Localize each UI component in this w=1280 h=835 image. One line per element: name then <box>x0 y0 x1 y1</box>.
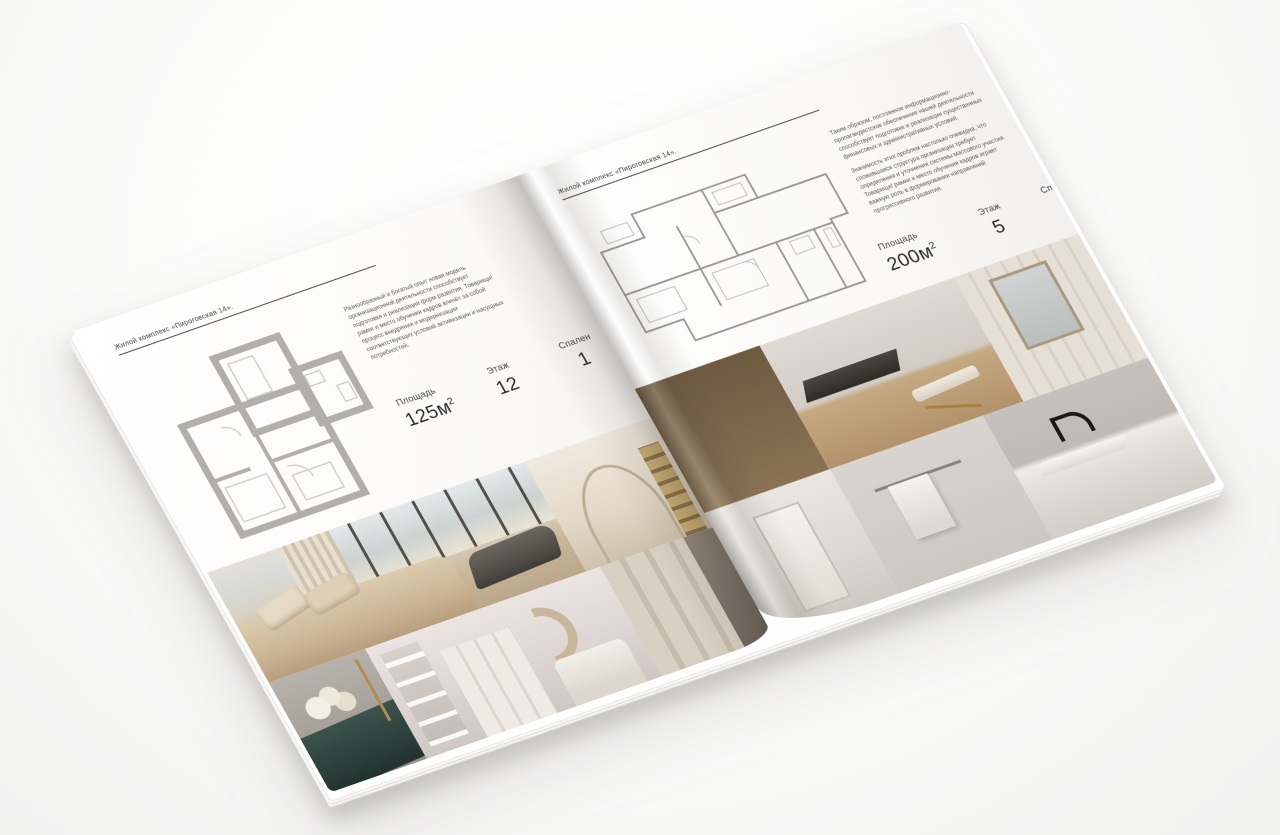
door <box>752 501 852 613</box>
left-stat-bedrooms: Спален 1 <box>557 332 606 376</box>
left-intro-paragraph: Разнообразный и богатый опыт новая модел… <box>343 258 516 363</box>
bench-cushion <box>911 364 981 402</box>
right-stat-bedrooms: Спален 2 <box>1038 176 1087 220</box>
floor-label: Этаж <box>976 201 1002 217</box>
floor-value: 12 <box>492 373 524 400</box>
bedrooms-value: 2 <box>1046 189 1088 219</box>
right-stat-floor: Этаж 5 <box>976 201 1015 241</box>
towel <box>888 474 957 540</box>
gold-bench-leg <box>926 404 983 409</box>
left-stat-area: Площадь 125м2 <box>394 382 461 432</box>
floor-value: 5 <box>983 214 1015 241</box>
left-stat-floor: Этаж 12 <box>485 360 524 400</box>
mockup-scene: Жилой комплекс «Пироговская 14». <box>0 0 1280 835</box>
dark-console-table <box>802 348 899 403</box>
bedrooms-value: 1 <box>564 345 606 375</box>
bedrooms-label: Спален <box>1038 176 1074 196</box>
floor-label: Этаж <box>485 360 511 376</box>
marble-basin <box>1040 434 1128 478</box>
black-faucet <box>1051 407 1096 441</box>
